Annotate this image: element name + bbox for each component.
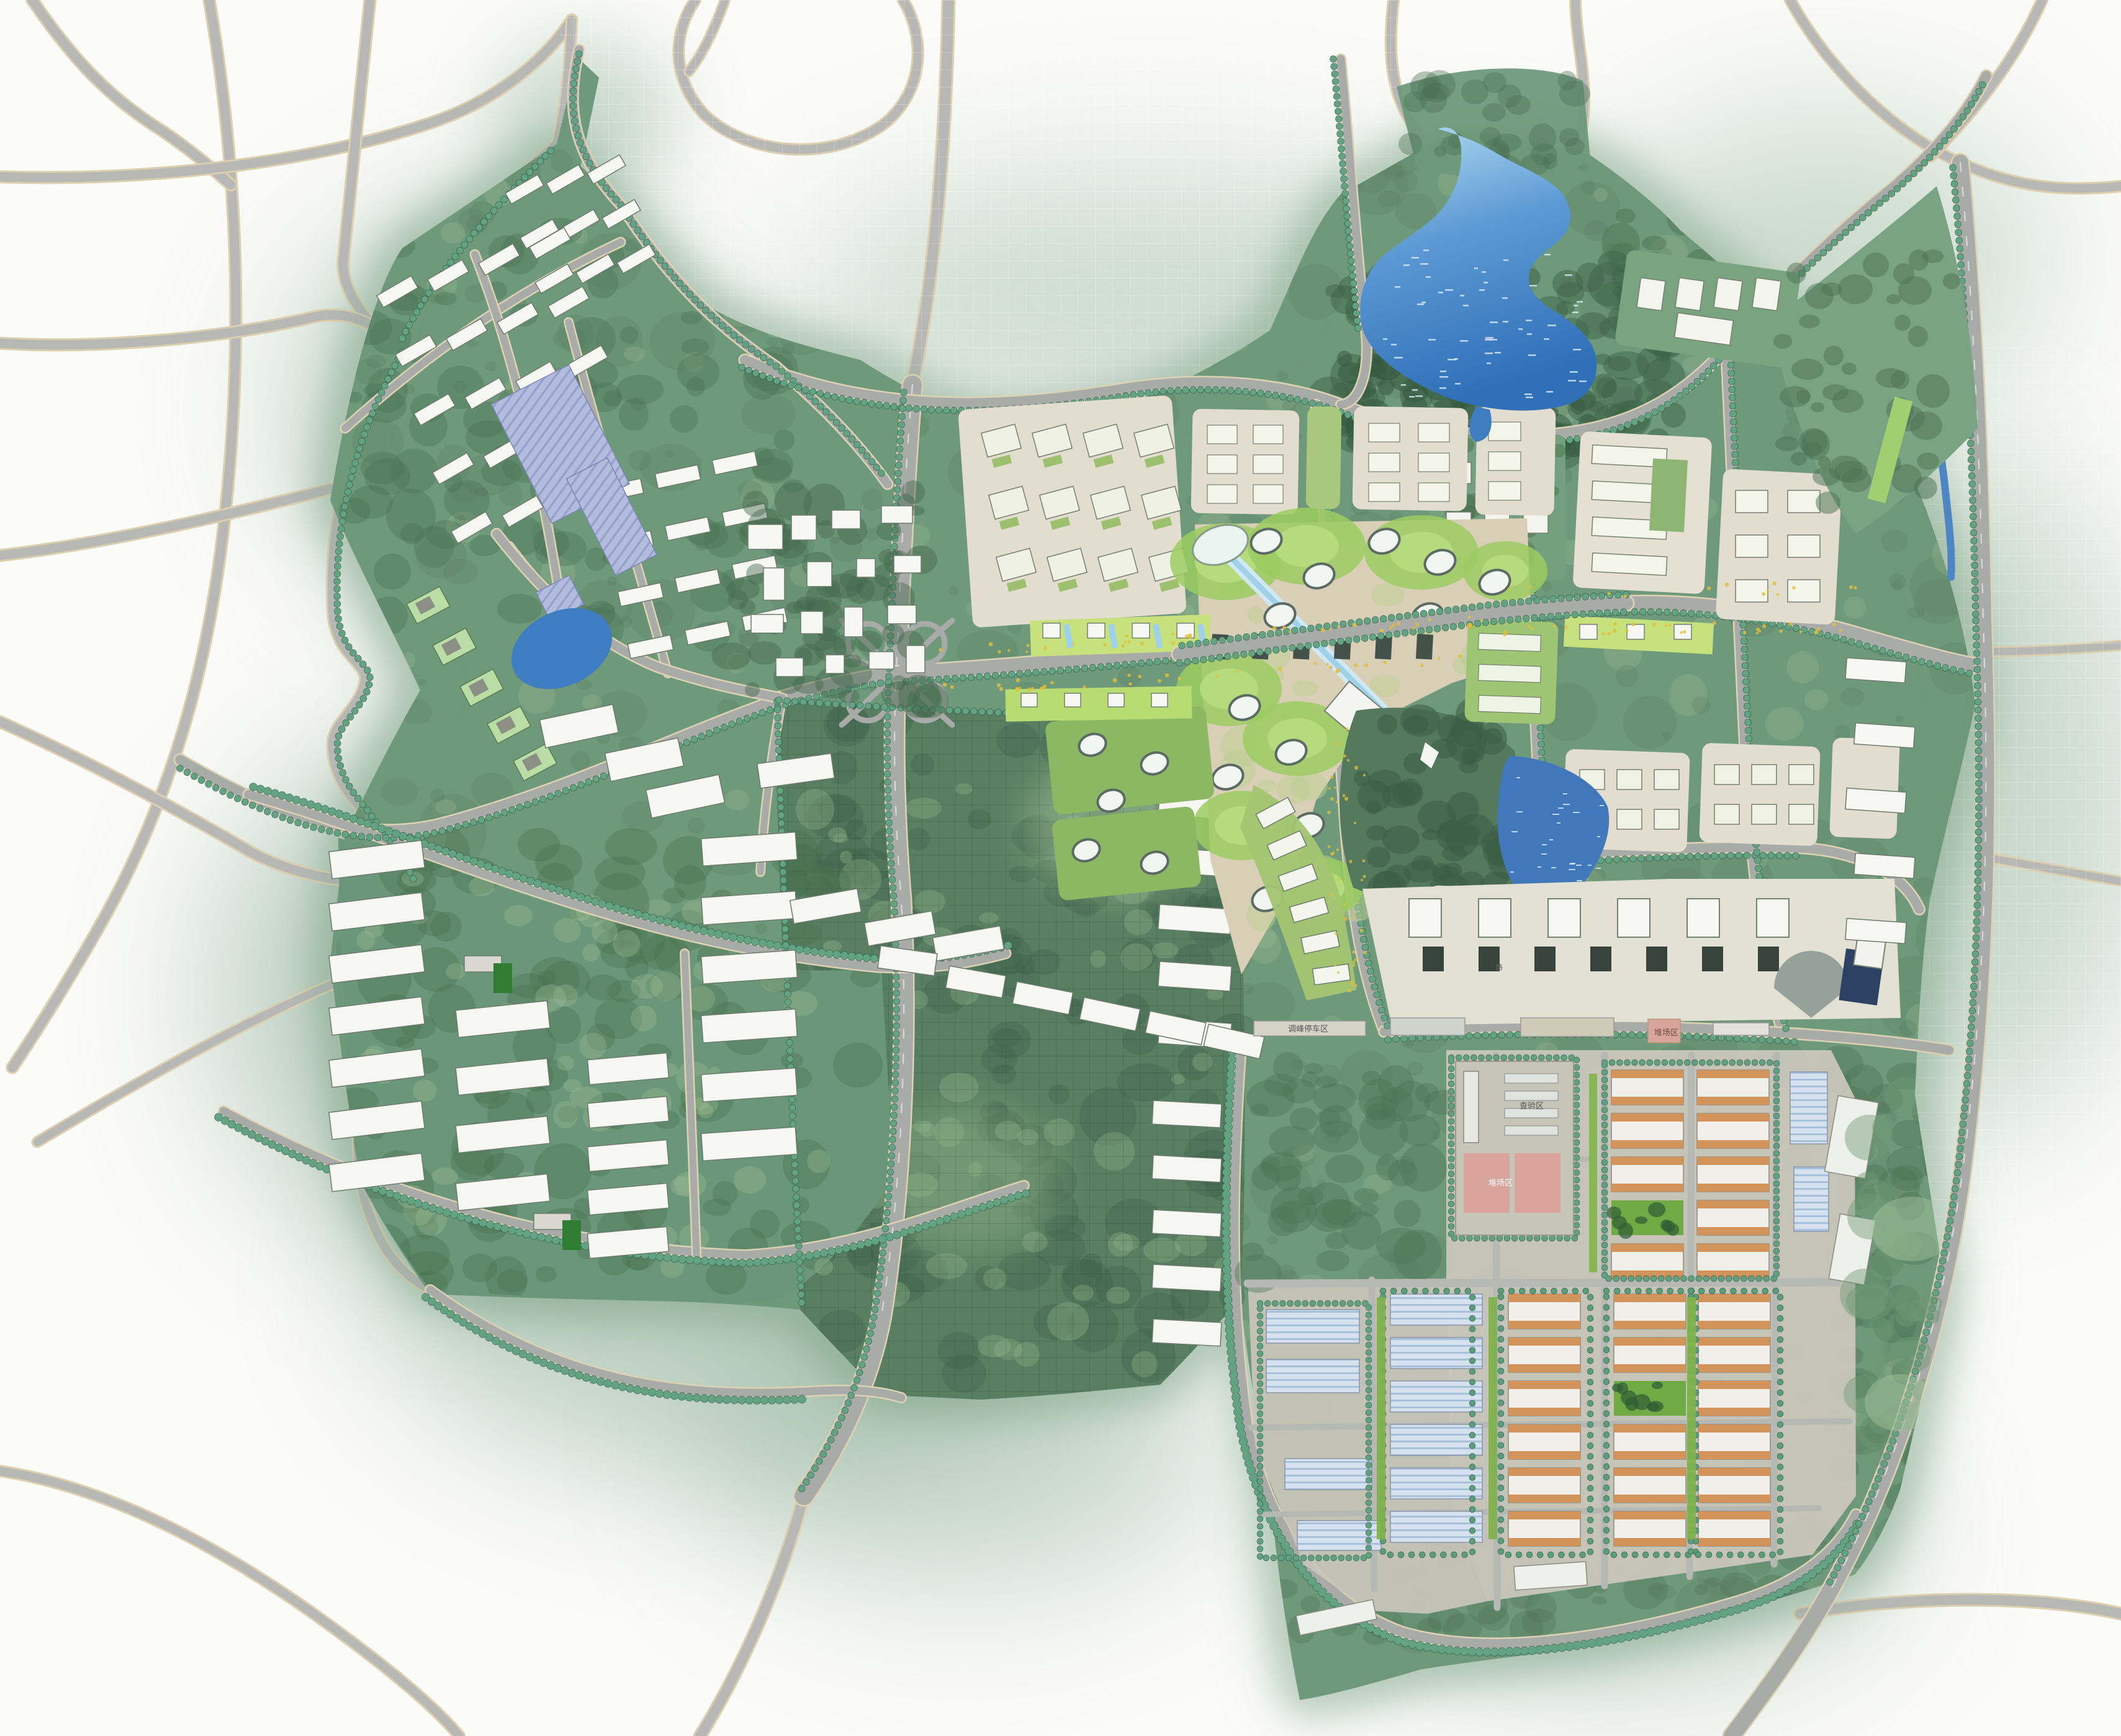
svg-text:查验区: 查验区 <box>1520 1101 1544 1110</box>
svg-text:调峰停车区: 调峰停车区 <box>1288 1024 1328 1033</box>
svg-text:路: 路 <box>1496 963 1503 971</box>
svg-text:堆场区: 堆场区 <box>1654 1028 1678 1037</box>
svg-text:堆场区: 堆场区 <box>1488 1178 1513 1187</box>
